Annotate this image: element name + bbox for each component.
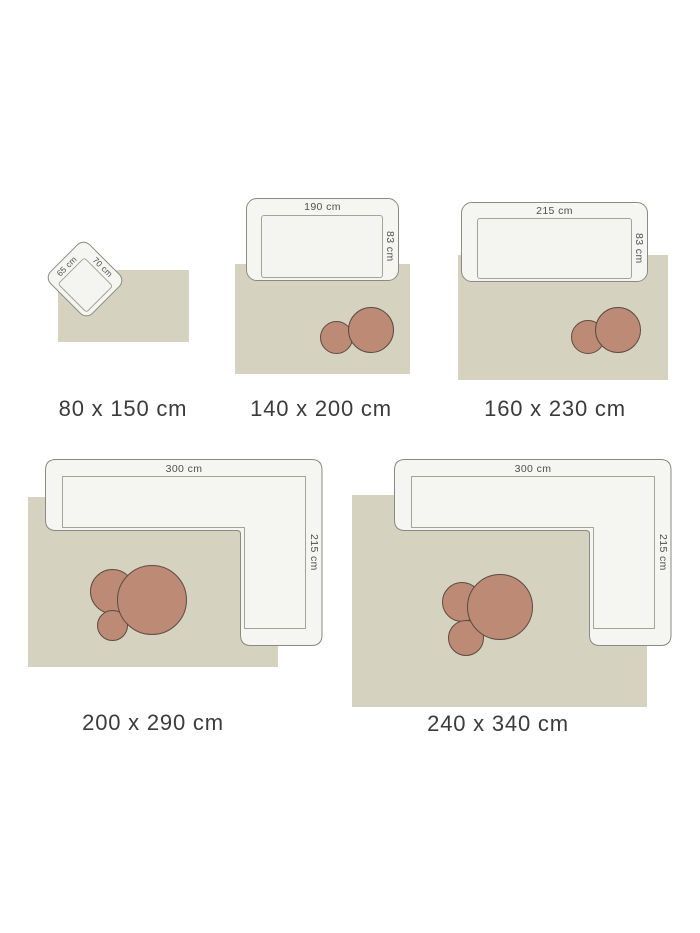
size-caption: 240 x 340 cm (388, 711, 608, 737)
width-dimension-label: 215 cm (462, 205, 647, 217)
width-dimension-label: 300 cm (45, 463, 323, 475)
coffee-table-circle (117, 565, 187, 635)
rug-size-guide: 65 cm 70 cm 80 x 150 cm 190 cm 83 cm 140… (0, 0, 700, 933)
width-dimension-label: 300 cm (394, 463, 672, 475)
corner-sofa: 300 cm 215 cm (394, 459, 672, 646)
depth-dimension-label: 215 cm (308, 476, 320, 629)
size-caption: 160 x 230 cm (445, 396, 665, 422)
depth-dimension-label: 83 cm (384, 215, 396, 277)
sofa-seat (261, 215, 383, 278)
sofa: 215 cm 83 cm (461, 202, 648, 282)
coffee-table-circle (595, 307, 641, 353)
size-caption: 140 x 200 cm (211, 396, 431, 422)
corner-sofa: 300 cm 215 cm (45, 459, 323, 646)
corner-sofa-shape (394, 459, 672, 646)
corner-sofa-shape (45, 459, 323, 646)
sofa-seat (477, 218, 632, 279)
size-caption: 200 x 290 cm (43, 710, 263, 736)
coffee-table-circle (467, 574, 533, 640)
coffee-table-circle (348, 307, 394, 353)
sofa: 190 cm 83 cm (246, 198, 399, 281)
depth-dimension-label: 215 cm (657, 476, 669, 629)
depth-dimension-label: 83 cm (633, 218, 645, 278)
width-dimension-label: 190 cm (247, 201, 398, 213)
size-caption: 80 x 150 cm (13, 396, 233, 422)
